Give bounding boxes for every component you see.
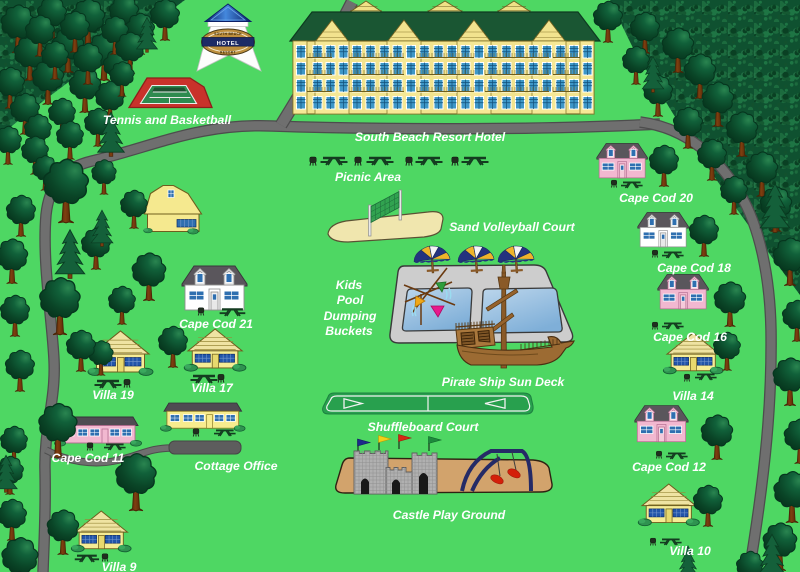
svg-text:Tennis and Basketball: Tennis and Basketball [103,113,232,127]
svg-text:South Beach Resort Hotel: South Beach Resort Hotel [355,130,506,144]
svg-text:Cape Cod 11: Cape Cod 11 [52,451,125,465]
svg-text:RESORT: RESORT [220,50,236,54]
svg-text:Dumping: Dumping [324,309,377,323]
svg-text:Villa 17: Villa 17 [191,381,234,395]
svg-text:Kids: Kids [336,278,363,292]
svg-text:Pirate Ship Sun Deck: Pirate Ship Sun Deck [442,375,566,389]
svg-text:Villa 14: Villa 14 [672,389,714,403]
svg-text:Cottage Office: Cottage Office [194,459,277,473]
svg-text:Villa 19: Villa 19 [92,388,134,402]
svg-text:Pool: Pool [337,293,364,307]
svg-text:Buckets: Buckets [325,324,373,338]
svg-text:Sand Volleyball Court: Sand Volleyball Court [449,220,575,234]
svg-text:HOTEL: HOTEL [217,41,240,47]
svg-text:Cape Cod 16: Cape Cod 16 [653,330,727,344]
svg-text:SOUTH BEACH: SOUTH BEACH [214,32,242,36]
svg-text:Cape Cod 20: Cape Cod 20 [619,191,693,205]
svg-text:Cape Cod 12: Cape Cod 12 [632,460,706,474]
svg-text:Cape Cod 18: Cape Cod 18 [657,261,731,275]
svg-text:Villa 9: Villa 9 [102,560,137,572]
svg-text:Picnic Area: Picnic Area [335,170,401,184]
svg-text:Shuffleboard Court: Shuffleboard Court [368,420,480,434]
svg-text:Castle Play Ground: Castle Play Ground [393,508,506,522]
svg-text:Villa 10: Villa 10 [669,544,711,558]
svg-text:Cape Cod 21: Cape Cod 21 [179,317,253,331]
